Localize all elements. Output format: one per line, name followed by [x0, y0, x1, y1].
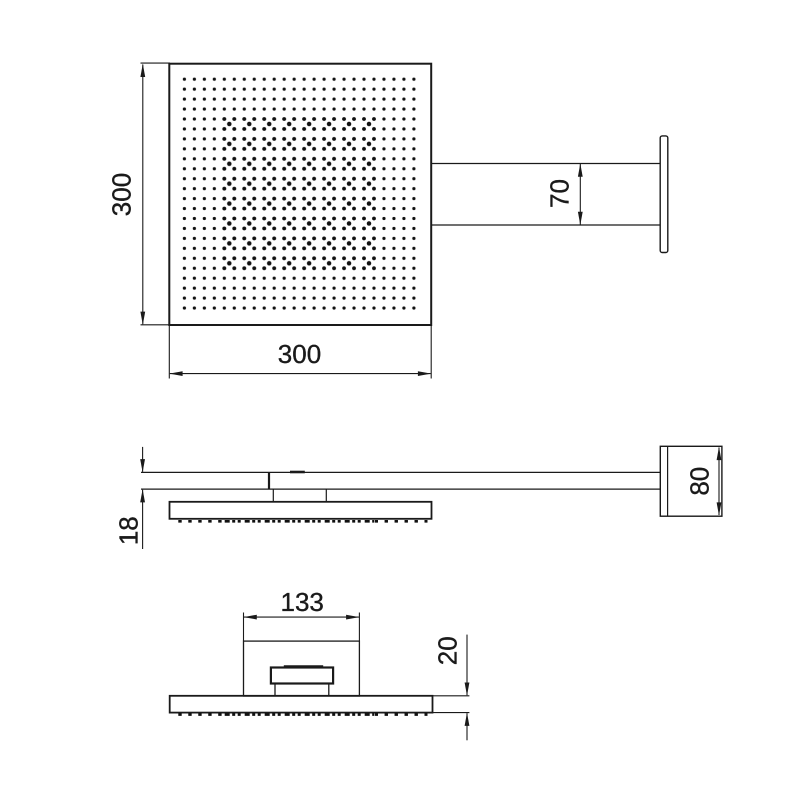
svg-text:20: 20 [432, 636, 462, 665]
svg-text:300: 300 [107, 173, 137, 216]
svg-text:300: 300 [278, 339, 321, 369]
svg-text:18: 18 [114, 516, 144, 545]
svg-text:133: 133 [281, 587, 324, 617]
svg-text:80: 80 [685, 467, 715, 496]
svg-text:70: 70 [544, 179, 574, 208]
